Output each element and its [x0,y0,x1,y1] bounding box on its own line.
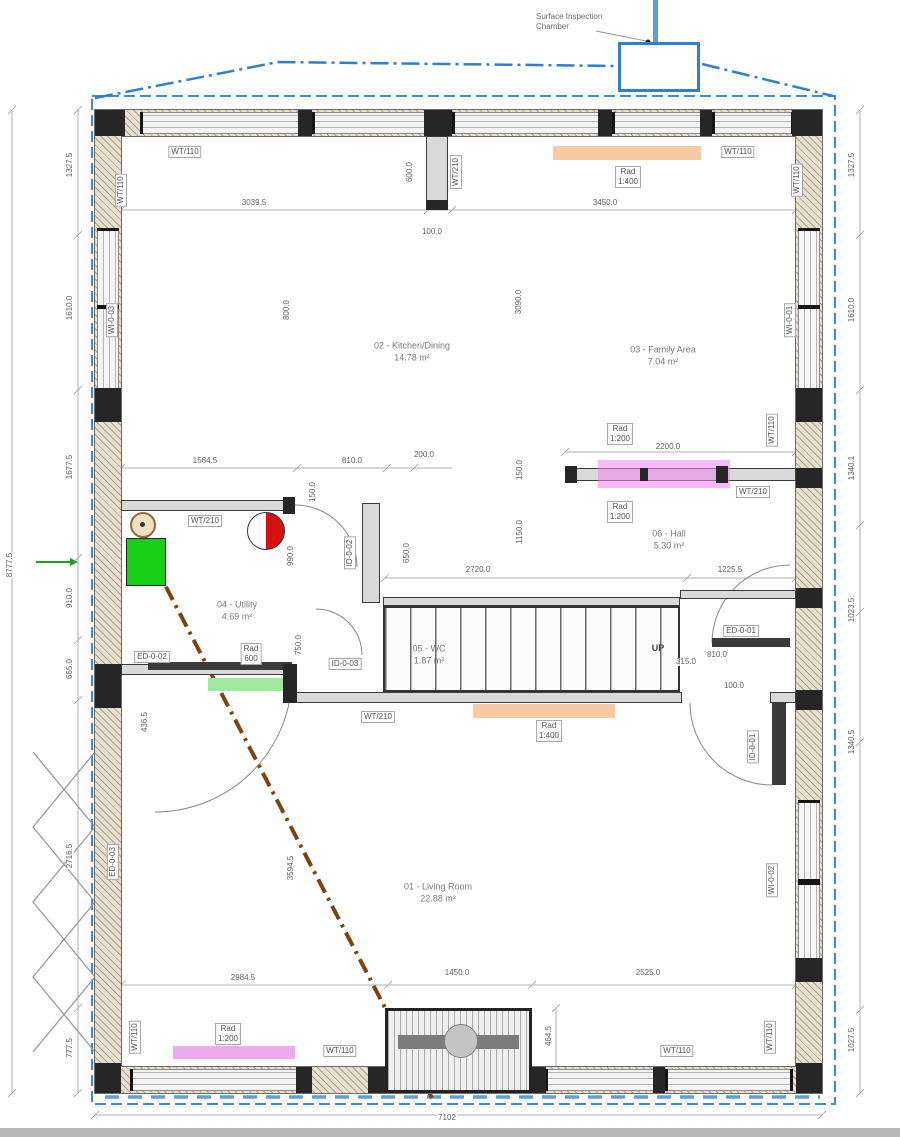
rad-spec: 1:200 [610,512,630,522]
tag-wi03: WI-0-03 [106,303,118,337]
radiator-utility [208,678,292,691]
dim-util-f: 650.0 [403,542,411,564]
tag-rad-hall-top: Rad 1:200 [607,423,633,445]
dim-right-3: 1023.5 [848,597,856,623]
dim-util-a: 1584.5 [192,457,218,465]
room-label-utility: 04 - Utility 4.69 m² [217,599,257,622]
window-left-1 [97,228,119,308]
tag-rad-stairs: Rad 1:400 [536,720,562,742]
tag-wt210-hall: WT/210 [736,486,770,498]
door-swing-id01 [690,703,772,785]
dim-door-b: 100.0 [723,682,745,690]
rad-spec: 1:200 [610,434,630,444]
tag-wt110-right-top: WT/110 [791,163,803,196]
tag-rad-hall-bottom: Rad 1:200 [607,501,633,523]
iwall-living-north-2 [770,692,796,703]
tag-wi02: WI-0-02 [766,863,778,897]
dim-chimney: 464.5 [545,1025,553,1047]
surface-chamber-note-line2: Chamber [536,22,602,32]
room-label-living: 01 - Living Room 22.88 m² [404,881,472,904]
dim-right-0: 1327.5 [848,152,856,178]
door-swing-id03 [316,609,362,655]
dim-kitchen-w: 800.0 [283,299,291,321]
window-bottom-2 [545,1069,659,1091]
rad-spec: 1:400 [618,177,638,187]
dim-right-2: 1340.1 [848,455,856,481]
rad-spec: 1:200 [218,1034,238,1044]
stairs-up-label: UP [652,643,665,653]
pier-right-2 [796,468,822,488]
door-leaf-id01 [772,703,786,785]
tag-wt210-stairs: WT/210 [361,711,395,723]
dim-door-a: 810.0 [706,651,728,659]
room-label-family: 03 - Family Area 7.04 m² [630,344,696,367]
fireplace [385,1008,532,1093]
rad-spec: 600 [244,654,259,664]
radiator-stairs [473,704,615,718]
rad-spec: 1:400 [539,731,559,741]
dim-top-left: 3039.5 [241,199,267,207]
dim-left-1: 1610.0 [66,295,74,321]
pier-bottom-2 [368,1067,386,1093]
pier-left-2 [95,664,121,708]
door-leaf-ed01 [712,638,790,647]
tag-id03: ID-0-03 [329,658,362,670]
fireplace-flue [444,1024,478,1058]
dim-bottom-a: 2984.5 [230,974,256,982]
pier-corner-tl [95,110,125,136]
rad-word: Rad [610,424,630,434]
dim-bottom-b: 1450.0 [444,969,470,977]
iwall-top-stub [426,136,448,208]
dim-hall-off: 150.0 [516,459,524,481]
dim-hall-h: 1150.0 [516,519,524,545]
drain-run-right [702,64,833,96]
room-area: 14.78 m² [374,352,450,364]
dim-stair-off: 315.0 [675,658,697,666]
tag-wt110-top-left: WT/110 [168,146,201,158]
dim-left-4: 665.0 [66,658,74,680]
dim-living-h: 3594.5 [287,855,295,881]
dim-util-g: 750.0 [295,634,303,656]
iwall-hall-pier-2 [640,468,648,481]
tag-ed01: ED-0-01 [723,625,759,637]
rad-word: Rad [610,502,630,512]
iwall-junction [283,664,297,703]
window-right-4 [798,882,820,962]
tag-wt110-right-bottom: WT/110 [764,1020,776,1053]
iwall-living-north [295,692,682,703]
tag-id01: ID-0-01 [747,731,759,764]
iwall-hall-south [680,590,796,599]
pier-right-5 [796,958,822,982]
iwall-top-stub-cap [426,200,448,210]
room-area: 22.88 m² [404,893,472,905]
room-area: 7.04 m² [630,356,696,368]
room-name: 01 - Living Room [404,881,472,893]
dim-kitchen-h: 3090.0 [515,289,523,315]
dim-hall-rad: 2200.0 [655,443,681,451]
rad-word: Rad [244,644,259,654]
room-label-wc: 05 - WC 1.87 m² [412,643,445,666]
pier-corner-tr [792,110,822,136]
dim-left-6: 777.5 [66,1037,74,1059]
room-label-hall: 06 - Hall 5.30 m² [652,528,686,551]
dim-util-h: 436.5 [141,711,149,733]
tag-id02: ID-0-02 [344,537,356,570]
room-area: 4.69 m² [217,611,257,623]
pier-corner-br [796,1063,822,1093]
utility-gully-symbol [130,512,156,538]
dim-util-b: 810.0 [341,457,363,465]
iwall-stairs-top [383,597,680,606]
pier-top-2 [598,110,612,136]
tag-wt110-left-bottom: WT/110 [129,1020,141,1053]
window-bottom-1 [130,1069,302,1091]
tag-wt110-right-mid: WT/110 [766,413,778,446]
dim-util-c: 200.0 [413,451,435,459]
window-right-1 [798,228,820,308]
dim-left-2: 1677.5 [66,454,74,480]
iwall-utility-end [283,497,295,514]
surface-chamber-note-line1: Surface Inspection [536,12,602,22]
room-name: 06 - Hall [652,528,686,540]
pier-bottom-1 [296,1067,312,1093]
dim-left-3: 910.0 [66,587,74,609]
tag-wi01: WI-0-01 [784,303,796,337]
tag-wt110-left-top: WT/110 [115,173,127,206]
pier-right-3 [796,588,822,608]
window-top-2 [312,112,434,134]
dim-stair-w: 2720.0 [465,566,491,574]
radiator-family [553,146,701,160]
fence-zigzag-1 [33,752,95,1052]
utility-appliance [126,538,166,586]
room-label-kitchen: 02 - Kitchen/Dining 14.78 m² [374,340,450,363]
dim-util-d: 150.0 [309,481,317,503]
dim-right-4: 1340.5 [848,729,856,755]
radiator-living [173,1046,295,1059]
window-top-5 [712,112,794,134]
sheet-edge-bar [0,1128,900,1137]
door-leaf-ed02 [148,662,292,670]
pier-left-1 [95,388,121,422]
tag-ed02: ED-0-02 [134,651,170,663]
tag-wt210-stub: WT/210 [450,155,462,189]
tag-wt110-bottom-left: WT/110 [323,1045,356,1057]
chamber-leader-line [596,31,646,41]
dim-stub-h: 600.0 [406,161,414,183]
iwall-wc-west [362,503,380,603]
surface-chamber-note: Surface Inspection Chamber [536,12,602,32]
room-area: 5.30 m² [652,540,686,552]
tag-rad-living: Rad 1:200 [215,1023,241,1045]
tag-rad-family: Rad 1:400 [615,166,641,188]
iwall-hall-pier-3 [716,466,728,483]
tag-rad-utility: Rad 600 [241,643,262,665]
dim-bottom-c: 2525.0 [635,969,661,977]
dim-left-0: 1327.5 [66,152,74,178]
boiler-symbol [247,512,285,550]
dim-top-right: 3450.0 [592,199,618,207]
dim-hall-b: 1225.5 [717,566,743,574]
room-name: 03 - Family Area [630,344,696,356]
room-name: 04 - Utility [217,599,257,611]
window-right-2 [798,306,820,394]
dim-stub-gap: 100.0 [421,228,443,236]
pier-bottom-4 [653,1067,665,1093]
tag-wt110-top-right: WT/110 [721,146,754,158]
pier-right-1 [796,388,822,422]
room-area: 1.87 m² [412,655,445,667]
window-top-1 [140,112,304,134]
dim-left-5: 2716.5 [66,843,74,869]
floor-plan-canvas: Surface Inspection Chamber 02 - Kitchen/… [0,0,900,1137]
dim-far-left: 8777.5 [6,552,14,578]
pier-bottom-3 [530,1067,546,1093]
room-name: 05 - WC [412,643,445,655]
tag-ed03: ED-0-03 [107,844,119,880]
iwall-hall-pier-1 [565,466,577,483]
dim-util-e: 990.0 [287,545,295,567]
window-bottom-3 [665,1069,793,1091]
inspection-chamber-symbol [618,42,700,92]
window-top-4 [612,112,706,134]
pier-corner-bl [95,1063,121,1093]
tag-wt210-utility: WT/210 [188,515,222,527]
pier-right-4 [796,690,822,710]
fence-zigzag-2 [33,752,95,1052]
drain-pipe-top [653,0,658,42]
radiator-hall [598,460,730,488]
window-top-3 [452,112,604,134]
rad-word: Rad [539,721,559,731]
pier-top-1 [298,110,312,136]
rad-word: Rad [618,167,638,177]
dim-right-1: 1610.0 [848,297,856,323]
dim-overall-w: 7102 [437,1114,457,1122]
room-name: 02 - Kitchen/Dining [374,340,450,352]
drain-run-left [95,62,615,98]
iwall-utility-top [121,500,295,511]
tag-wt110-bottom-right: WT/110 [660,1045,693,1057]
window-right-3 [798,800,820,882]
pier-top-stub [424,110,452,136]
rad-word: Rad [218,1024,238,1034]
pier-top-3 [700,110,712,136]
dim-right-5: 1027.5 [848,1027,856,1053]
